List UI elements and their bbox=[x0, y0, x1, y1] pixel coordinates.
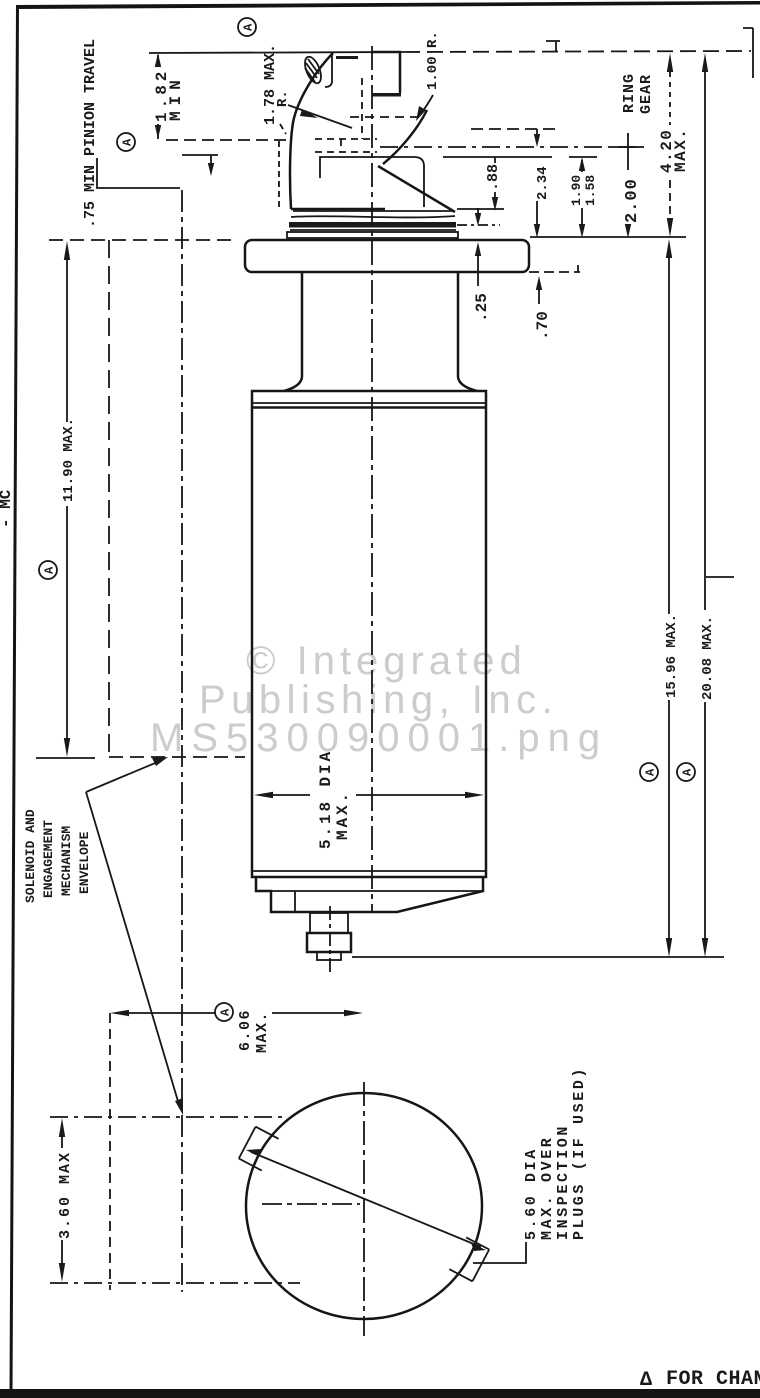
svg-text:20.08 MAX.: 20.08 MAX. bbox=[700, 616, 716, 700]
svg-text:.75 MIN PINION TRAVEL: .75 MIN PINION TRAVEL bbox=[82, 39, 99, 228]
svg-text:3.60 MAX: 3.60 MAX bbox=[57, 1151, 74, 1239]
svg-text:1.00 R.: 1.00 R. bbox=[425, 31, 441, 90]
svg-text:INSPECTION: INSPECTION bbox=[555, 1124, 572, 1240]
svg-text:MAX.: MAX. bbox=[334, 790, 352, 840]
svg-text:2.34: 2.34 bbox=[535, 166, 551, 200]
svg-text:RING: RING bbox=[621, 73, 638, 113]
svg-text:SOLENOID AND: SOLENOID AND bbox=[23, 809, 38, 903]
svg-text:Δ: Δ bbox=[640, 1369, 652, 1392]
svg-text:- MC: - MC bbox=[0, 489, 15, 528]
svg-text:.25: .25 bbox=[473, 293, 491, 322]
svg-text:A: A bbox=[644, 768, 658, 776]
svg-text:A: A bbox=[43, 566, 57, 574]
svg-text:A: A bbox=[219, 1008, 233, 1016]
svg-text:1.58: 1.58 bbox=[583, 175, 598, 206]
svg-text:2.00: 2.00 bbox=[623, 178, 642, 223]
svg-text:11.90 MAX.: 11.90 MAX. bbox=[61, 418, 77, 502]
svg-text:MS530090001.png: MS530090001.png bbox=[150, 716, 608, 760]
svg-text:A: A bbox=[242, 23, 256, 31]
svg-text:MAX.: MAX. bbox=[254, 1011, 271, 1053]
svg-text:1.90: 1.90 bbox=[569, 175, 584, 206]
svg-text:5.60 DIA: 5.60 DIA bbox=[523, 1147, 540, 1240]
svg-text:MAX. OVER: MAX. OVER bbox=[539, 1136, 556, 1240]
svg-text:1.78 MAX.: 1.78 MAX. bbox=[262, 44, 279, 125]
svg-text:6.06: 6.06 bbox=[237, 1009, 254, 1051]
svg-text:© Integrated: © Integrated bbox=[246, 639, 527, 683]
svg-text:GEAR: GEAR bbox=[638, 74, 655, 114]
svg-text:15.96 MAX.: 15.96 MAX. bbox=[664, 614, 680, 698]
svg-text:FOR CHANGE: FOR CHANGE bbox=[666, 1368, 760, 1391]
svg-text:MIN: MIN bbox=[167, 74, 185, 121]
svg-text:ENVELOPE: ENVELOPE bbox=[77, 831, 92, 894]
svg-text:MECHANISM: MECHANISM bbox=[59, 826, 74, 896]
svg-text:PLUGS (IF USED): PLUGS (IF USED) bbox=[571, 1066, 588, 1240]
svg-text:ENGAGEMENT: ENGAGEMENT bbox=[41, 820, 56, 898]
svg-text:MAX.: MAX. bbox=[672, 128, 690, 172]
svg-text:.88: .88 bbox=[485, 164, 502, 191]
svg-text:A: A bbox=[681, 768, 695, 776]
svg-text:A: A bbox=[121, 138, 135, 146]
svg-text:5.18 DIA: 5.18 DIA bbox=[317, 749, 335, 849]
svg-text:.70: .70 bbox=[534, 311, 552, 340]
